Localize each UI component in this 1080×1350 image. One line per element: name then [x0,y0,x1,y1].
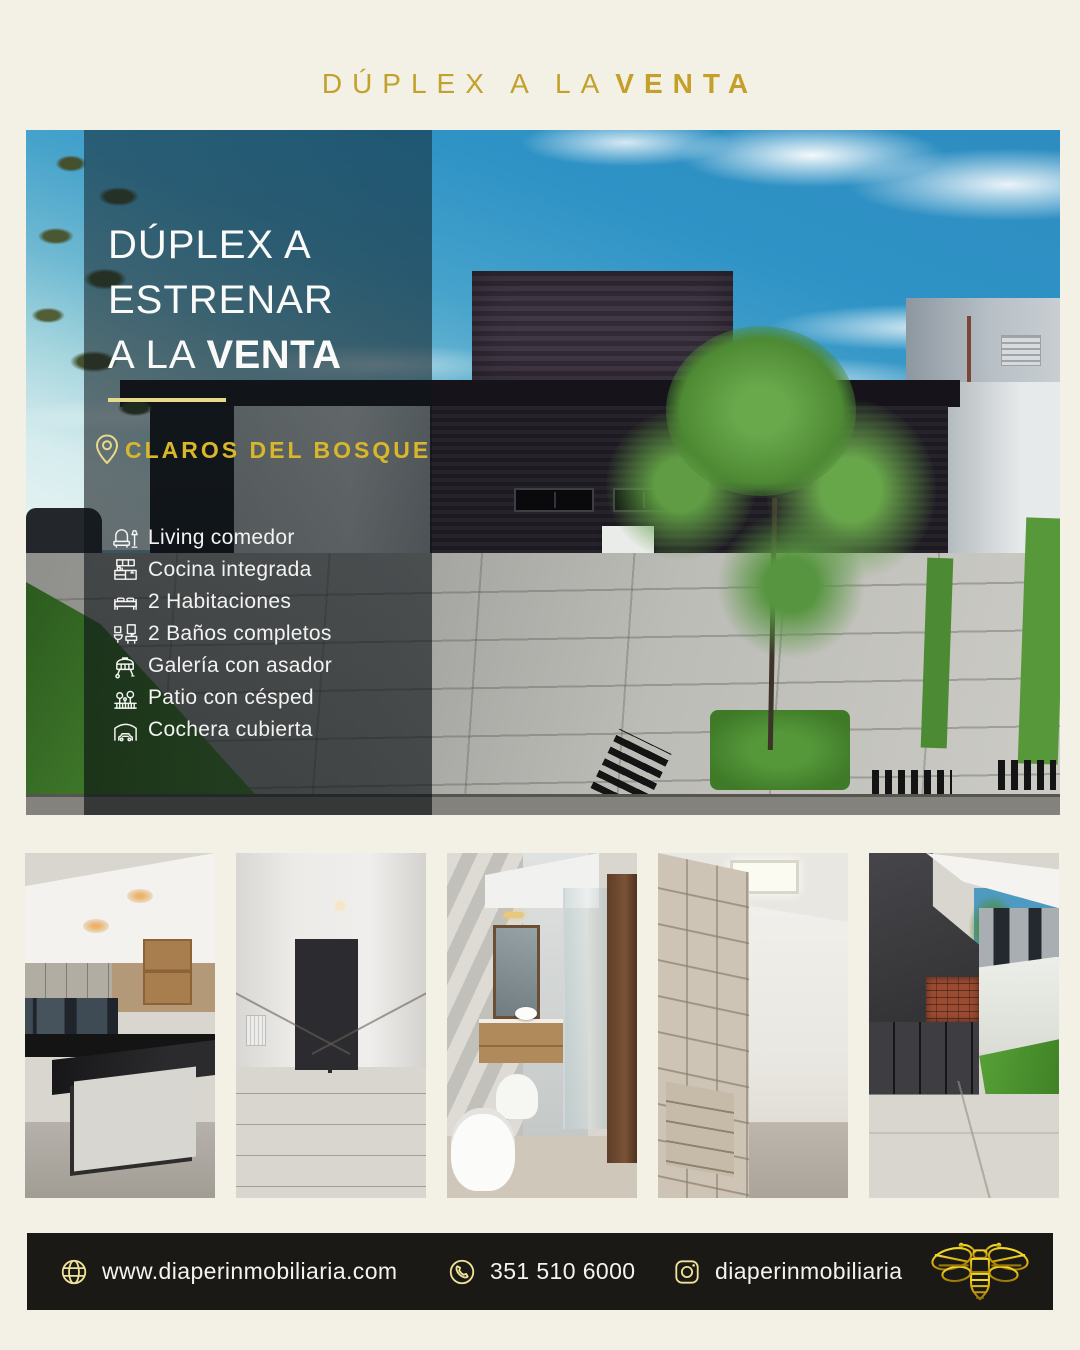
patio-grill-photo [869,853,1059,1198]
gold-divider [108,398,226,402]
feature-label: Living comedor [148,526,295,550]
facade-window [514,488,594,512]
bee-logo [923,1240,1037,1304]
feature-label: Galería con asador [148,654,332,678]
feature-label: Cocina integrada [148,558,312,582]
kitchen-cabinet-icon [112,557,139,584]
ac-unit [1001,335,1041,366]
phone-link[interactable]: 351 510 6000 [447,1257,636,1287]
hero-title: DÚPLEX A ESTRENAR A LA VENTA [108,218,342,383]
hero-title-line2: ESTRENAR [108,278,334,322]
globe-icon [59,1257,89,1287]
living-room-photo [236,853,426,1198]
instagram-label: diaperinmobiliaria [715,1258,902,1285]
location-label: CLAROS DEL BOSQUE [125,437,431,464]
phone-icon [447,1257,477,1287]
instagram-link[interactable]: diaperinmobiliaria [672,1257,902,1287]
phone-label: 351 510 6000 [490,1258,636,1285]
bed-icon [112,589,139,616]
flyer: DÚPLEX A LAVENTA [0,0,1080,1350]
location-row: CLAROS DEL BOSQUE [92,432,431,468]
kitchen-photo [25,853,215,1198]
feature-item: Patio con césped [112,682,332,714]
feature-item: Cocina integrada [112,554,332,586]
feature-item: Galería con asador [112,650,332,682]
car-garage-icon [112,717,139,744]
hero-title-line3: A LA [108,333,194,377]
garden-fence-icon [112,685,139,712]
feature-label: Cochera cubierta [148,718,313,742]
drain-grate [998,760,1056,790]
tree-canopy [716,510,866,660]
website-label: www.diaperinmobiliaria.com [102,1258,397,1285]
photo-gallery [25,853,1059,1198]
grass-strip [1018,517,1060,764]
feature-item: 2 Habitaciones [112,586,332,618]
tree-grass-patch [710,710,850,790]
footer-bar: www.diaperinmobiliaria.com 351 510 6000 … [27,1233,1053,1310]
page-title: DÚPLEX A LAVENTA [0,68,1080,100]
location-pin-icon [92,432,122,468]
feature-item: 2 Baños completos [112,618,332,650]
feature-label: 2 Baños completos [148,622,332,646]
page-title-bold: VENTA [615,68,758,99]
feature-item: Cochera cubierta [112,714,332,746]
instagram-icon [672,1257,702,1287]
sofa-lamp-icon [112,525,139,552]
grill-icon [112,653,139,680]
feature-item: Living comedor [112,522,332,554]
feature-label: 2 Habitaciones [148,590,291,614]
tree-canopy [666,326,856,496]
walk-in-closet-photo [658,853,848,1198]
hero-title-line1: DÚPLEX A [108,223,312,267]
feature-label: Patio con césped [148,686,314,710]
vent-pipe [967,316,971,390]
page-title-regular: DÚPLEX A LA [322,68,609,99]
bathroom-photo [447,853,637,1198]
bathroom-icon [112,621,139,648]
hero-title-line3-bold: VENTA [206,333,341,377]
website-link[interactable]: www.diaperinmobiliaria.com [59,1257,397,1287]
feature-list: Living comedor Cocina integrada 2 Habita… [112,522,332,746]
